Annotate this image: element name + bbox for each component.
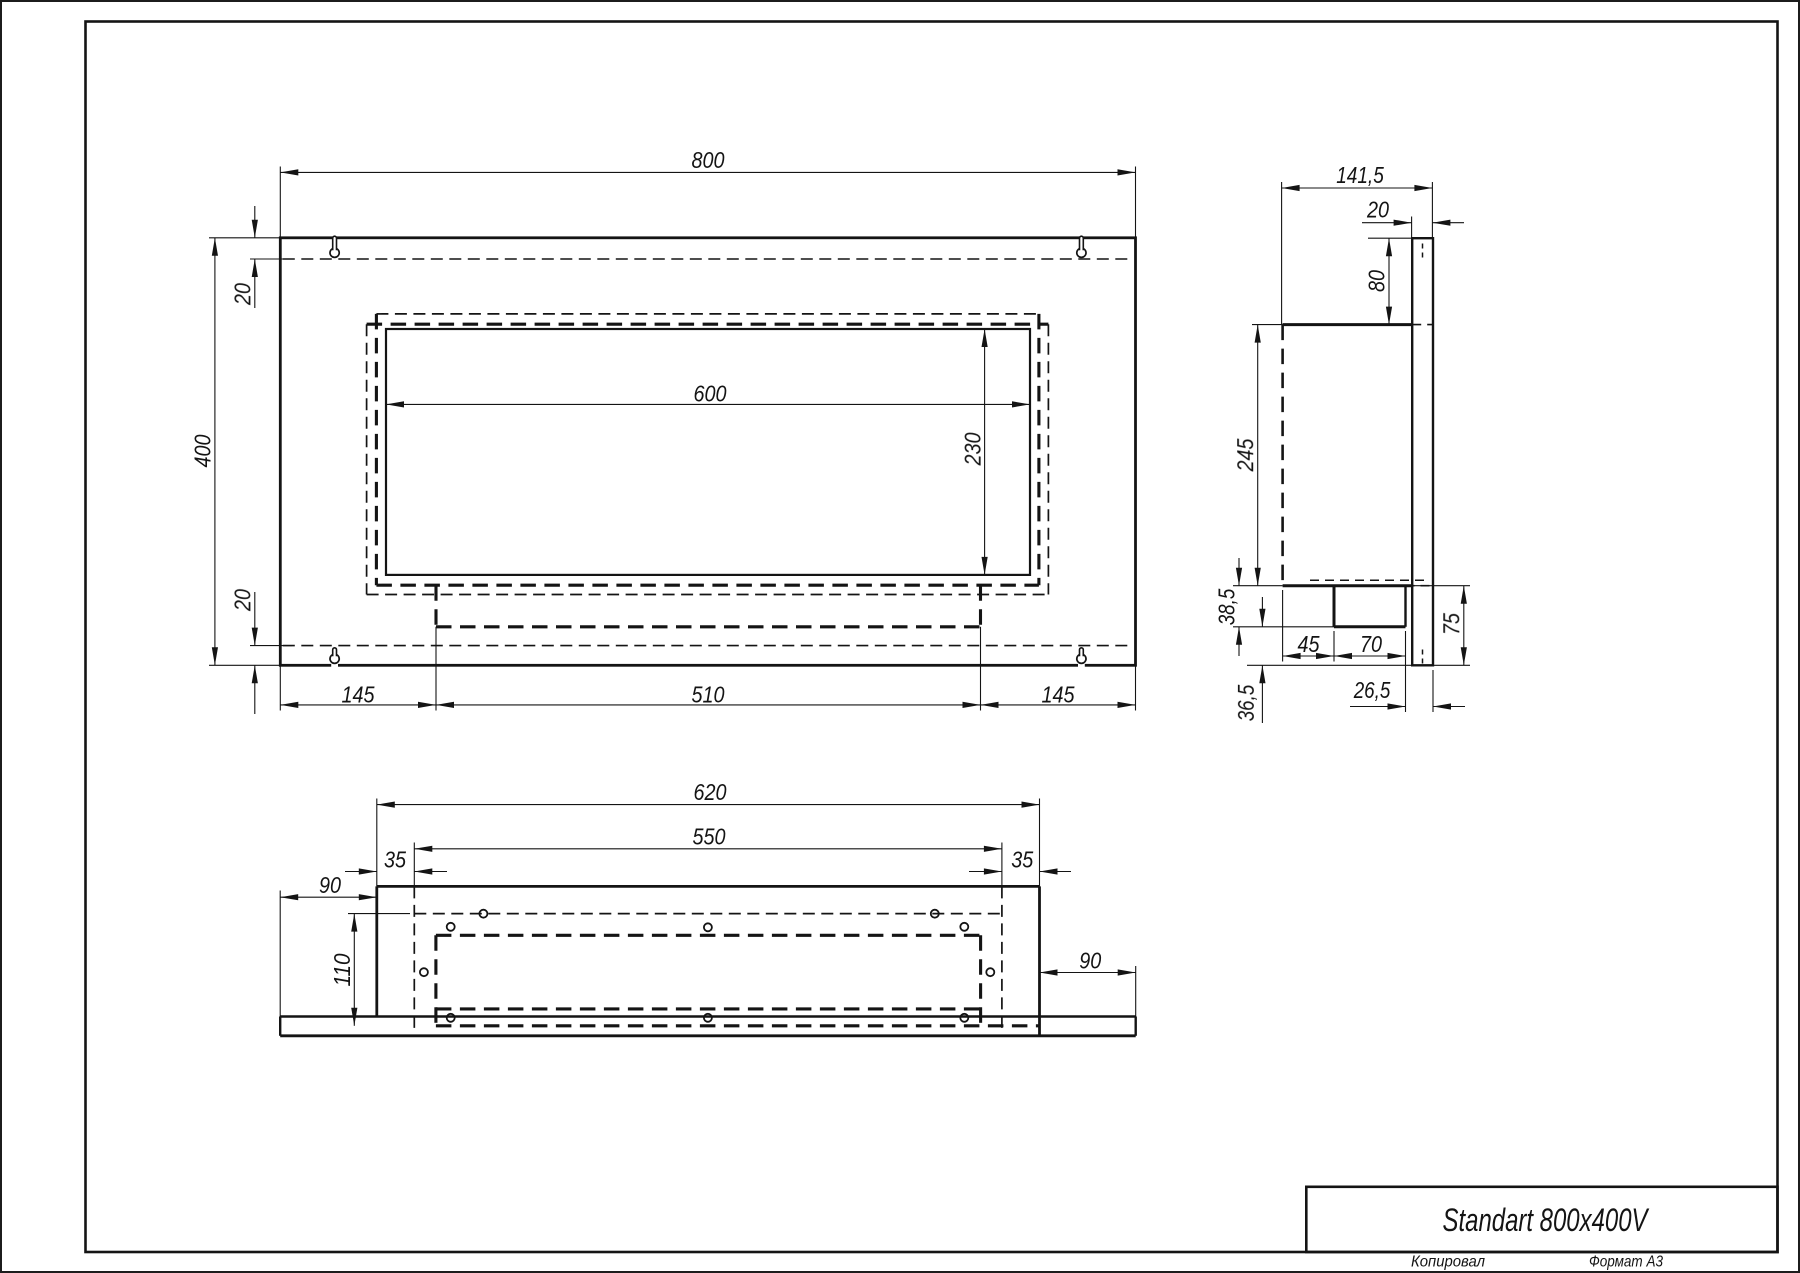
svg-text:141,5: 141,5 <box>1336 162 1384 188</box>
svg-text:70: 70 <box>1360 631 1382 657</box>
svg-text:20: 20 <box>229 283 255 306</box>
svg-text:245: 245 <box>1232 438 1258 473</box>
svg-text:20: 20 <box>1366 197 1389 223</box>
svg-text:90: 90 <box>1079 947 1101 973</box>
svg-text:Standart 800x400V: Standart 800x400V <box>1443 1202 1650 1238</box>
svg-text:Формат А3: Формат А3 <box>1589 1254 1663 1271</box>
svg-text:110: 110 <box>329 954 355 987</box>
svg-text:80: 80 <box>1364 270 1390 292</box>
svg-text:45: 45 <box>1298 631 1321 657</box>
svg-text:800: 800 <box>692 147 725 173</box>
svg-text:35: 35 <box>1011 847 1034 873</box>
svg-text:620: 620 <box>694 779 727 805</box>
svg-text:20: 20 <box>229 589 255 612</box>
svg-text:400: 400 <box>190 435 216 468</box>
svg-text:Копировал: Копировал <box>1411 1254 1485 1271</box>
svg-text:35: 35 <box>384 847 407 873</box>
svg-text:600: 600 <box>694 381 727 407</box>
svg-text:26,5: 26,5 <box>1353 677 1391 703</box>
svg-text:145: 145 <box>342 682 376 708</box>
svg-text:38,5: 38,5 <box>1214 588 1240 625</box>
svg-text:550: 550 <box>693 824 726 850</box>
svg-text:75: 75 <box>1438 612 1464 635</box>
svg-text:36,5: 36,5 <box>1233 684 1259 721</box>
svg-text:230: 230 <box>960 433 986 467</box>
svg-text:90: 90 <box>319 872 341 898</box>
svg-text:145: 145 <box>1042 682 1076 708</box>
svg-text:510: 510 <box>692 682 725 708</box>
